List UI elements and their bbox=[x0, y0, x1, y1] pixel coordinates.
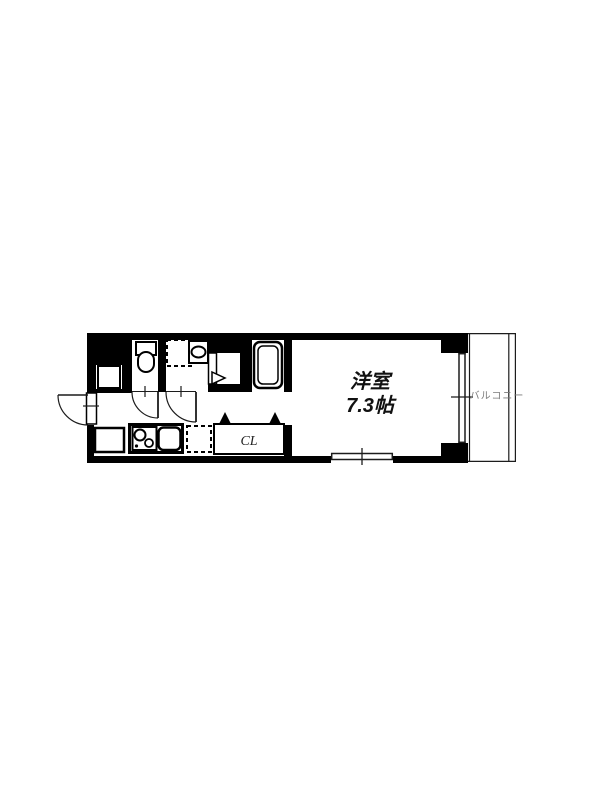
bathroom bbox=[254, 342, 282, 388]
western-room-name: 洋室 bbox=[350, 370, 393, 393]
wall-segment bbox=[87, 365, 96, 392]
wall-segment bbox=[87, 333, 132, 365]
wall-segment bbox=[158, 333, 166, 392]
floorplan-drawing: CL 洋室 7.3帖 バル bbox=[0, 0, 600, 800]
wall-segment bbox=[87, 333, 468, 340]
wall-segment bbox=[284, 425, 292, 456]
wall-segment bbox=[122, 365, 132, 392]
closet-label: CL bbox=[240, 434, 257, 449]
toilet-bowl-icon bbox=[138, 352, 154, 372]
western-room: 洋室 7.3帖 bbox=[346, 370, 397, 417]
wall-segment bbox=[284, 333, 292, 392]
shoe-cabinet-icon bbox=[98, 366, 120, 388]
door-direction-triangle-icon bbox=[212, 372, 225, 384]
closet-folding-door-icon bbox=[219, 412, 231, 424]
stove-burner-icon bbox=[135, 430, 146, 441]
wall-segment bbox=[208, 384, 240, 392]
entrance-door-swing-arc bbox=[58, 395, 88, 425]
kitchen bbox=[128, 423, 211, 454]
western-room-size: 7.3帖 bbox=[346, 394, 397, 417]
wall-segment bbox=[87, 456, 331, 463]
stove-burner-icon bbox=[145, 439, 153, 447]
washing-machine-space-icon bbox=[167, 340, 191, 366]
stove-knob-icon bbox=[135, 444, 138, 447]
wall-segment bbox=[208, 333, 240, 353]
closet-folding-door-icon bbox=[269, 412, 281, 424]
entrance-storage-icon bbox=[95, 428, 124, 452]
balcony-label: バルコニー bbox=[470, 390, 525, 402]
toilet-room bbox=[136, 342, 156, 372]
wall-segment bbox=[441, 333, 468, 353]
floorplan-page: CL 洋室 7.3帖 バル bbox=[0, 0, 600, 800]
closet: CL bbox=[214, 412, 284, 454]
washbasin-bowl-icon bbox=[192, 347, 206, 358]
wall-segment bbox=[240, 333, 252, 392]
wall-segment bbox=[441, 443, 468, 463]
bottom-window bbox=[331, 448, 393, 465]
entrance-door-icon bbox=[87, 393, 97, 424]
balcony: バルコニー bbox=[468, 333, 524, 462]
kitchen-sink-icon bbox=[159, 428, 181, 451]
refrigerator-space-icon bbox=[187, 426, 211, 452]
